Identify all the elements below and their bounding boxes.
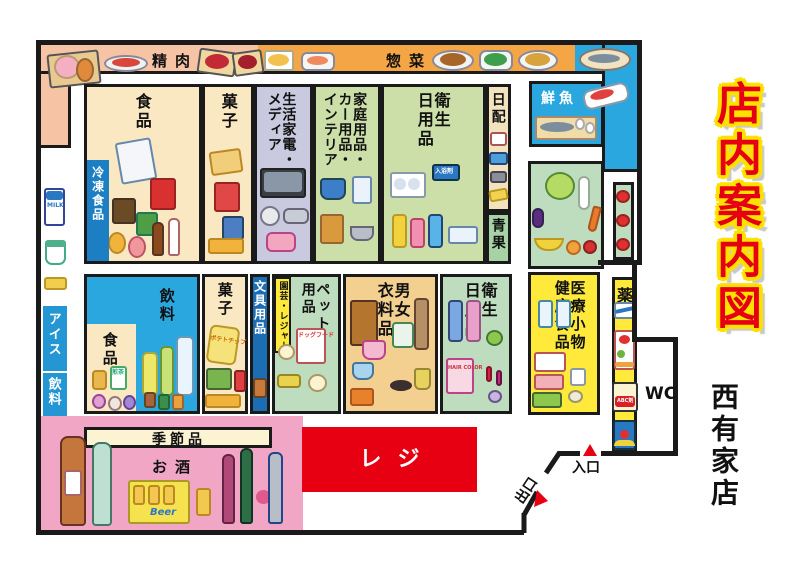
produce-label: 青果: [490, 218, 505, 252]
exit-triangle-icon: [534, 490, 548, 507]
detergent-bottle-icon: [428, 214, 443, 248]
deli-band-label: 惣菜: [386, 50, 432, 71]
milk-carton-band: [46, 191, 63, 200]
exit-label: 出口: [511, 474, 541, 507]
detergent-bottle-icon: [410, 218, 425, 248]
fish-label: 鮮魚: [541, 88, 577, 108]
can-drink-icon: [172, 394, 184, 410]
lipstick-icon: [486, 366, 492, 382]
appliance-icon: [266, 232, 296, 252]
wall-entry-left: [558, 451, 580, 456]
chicken-icon: [76, 58, 94, 82]
food-2-label: 食品: [101, 332, 117, 368]
beer-case-icon: Beer: [128, 480, 190, 524]
sausage-icon: [112, 58, 140, 67]
shoes-icon: [390, 380, 412, 391]
boots-icon: [414, 368, 431, 390]
pet-can-icon: [277, 374, 301, 388]
wine-bottle-icon: [222, 454, 235, 524]
powder-icon: [488, 390, 502, 403]
beer-can-icon: [163, 485, 175, 505]
natto-pack-icon: [490, 132, 507, 146]
fish-icon: [540, 122, 574, 132]
pot-icon: [350, 226, 374, 241]
calculator-icon: [253, 378, 267, 398]
cat-icon: [278, 344, 295, 360]
snack-box-icon: [208, 238, 244, 254]
snack-can-icon: [234, 370, 246, 392]
water-bottle-icon: [176, 336, 194, 396]
hygiene-1-label: 衛生日用品: [415, 92, 449, 149]
egg-icon: [575, 118, 585, 130]
sake-bottle-label: [64, 470, 82, 496]
tomato-icon: [616, 238, 630, 251]
register-label: レジ: [302, 427, 477, 492]
electronics-label: 生活家電・メディア: [266, 92, 295, 167]
wall-right-mid: [632, 263, 637, 342]
detergent-bottle-icon: [392, 214, 407, 248]
greens-icon: [484, 53, 507, 66]
boombox-icon: [283, 208, 309, 224]
yogurt-lid: [45, 240, 66, 247]
tofu-pack-icon: [489, 152, 508, 165]
tea-text: 煎茶: [112, 370, 124, 376]
wall-top: [36, 40, 642, 45]
kettle-icon: [260, 206, 280, 226]
sake-bottle-green-icon: [92, 442, 112, 526]
shampoo-bottle-icon: [466, 300, 481, 342]
can-drink-icon: [144, 392, 156, 408]
cabbage-icon: [545, 172, 575, 200]
tea-jar-icon: [92, 370, 107, 390]
cold-medicine-strip: [615, 362, 634, 367]
karaage-icon: [440, 53, 466, 66]
wc-label: WC: [645, 384, 676, 404]
store-floor-map: 精肉 惣菜 MILK アイス 飲料 食品 冷凍食品 菓子 生活家電: [0, 0, 800, 577]
entrance-label: 入口: [572, 460, 600, 476]
wall-right-upper: [637, 40, 642, 265]
alcohol-label: お酒: [152, 456, 198, 477]
bath-salt-text: 入浴剤: [435, 169, 453, 175]
daily-label: 日配: [490, 92, 505, 126]
bag-icon: [392, 322, 414, 348]
household-label: 家庭用品・カー用品・インテリア: [322, 92, 366, 167]
contact-box-icon: [538, 300, 553, 328]
sake-bottle-blue-icon: [268, 452, 283, 524]
stirfry-icon: [525, 53, 550, 66]
snacks-1-label: 菓子: [219, 93, 236, 131]
cold-medicine-dot: [619, 335, 630, 344]
konnyaku-icon: [490, 171, 507, 183]
stationery-label: 文具用品: [253, 280, 266, 336]
jam-jar-icon: [92, 394, 106, 409]
lipstick-icon: [496, 370, 502, 386]
can-drink-icon: [158, 394, 170, 410]
towel-icon: [352, 176, 372, 204]
pet-bottle-icon: [160, 346, 174, 396]
garden-label: 園芸・レジャー: [277, 281, 286, 351]
tissue-box-icon: [448, 226, 478, 244]
map-title: 店内案内図: [690, 80, 758, 355]
snack-box-icon: [208, 148, 243, 176]
beer-can-icon: [196, 488, 211, 516]
entrance-triangle-icon: [583, 444, 597, 456]
eggplant-icon: [532, 208, 544, 228]
apple-icon: [583, 240, 597, 254]
bandage-icon: [570, 368, 586, 386]
pet-bottle-icon: [142, 352, 158, 396]
beer-case-text: Beer: [150, 508, 176, 518]
sauce-bottle-icon: [168, 218, 180, 256]
wall-bottom: [36, 530, 524, 535]
can-icon: [108, 232, 126, 254]
beer-can-icon: [133, 485, 145, 505]
ice-label: アイス: [46, 312, 60, 357]
butter-box-icon: [44, 277, 67, 290]
can-icon: [128, 236, 146, 258]
supplement-box-icon: [534, 374, 564, 390]
store-name: 西有家店: [703, 382, 743, 517]
pants-icon: [414, 298, 429, 350]
wall-left: [36, 40, 41, 535]
jam-jar-icon: [123, 395, 136, 410]
paper-roll: [394, 178, 406, 190]
beef-icon: [205, 54, 229, 69]
stomach-sign-sun: [620, 430, 629, 439]
sushi-icon: [307, 56, 328, 65]
meat-band-label: 精肉: [152, 50, 198, 71]
wall-entry-right: [601, 451, 678, 456]
snacks-2-label: 菓子: [216, 282, 232, 318]
snack-box-icon: [214, 182, 240, 212]
pet-label: ペット用品: [300, 282, 329, 333]
daikon-icon: [578, 176, 590, 210]
hair-color-text: HAIR COLOR: [448, 366, 483, 371]
jam-jar-icon: [108, 396, 122, 411]
shirt-icon: [320, 178, 346, 200]
tempura-icon: [268, 54, 289, 66]
milk-text: MILK: [47, 203, 64, 209]
contact-box-icon: [556, 300, 571, 328]
blouse-icon: [362, 340, 386, 360]
wall-wc-top: [632, 337, 678, 342]
dog-icon: [308, 374, 327, 392]
cold-medicine-dot: [617, 350, 625, 358]
egg-icon: [585, 122, 595, 134]
drinks-2-label: 飲料: [158, 288, 174, 324]
orange-icon: [566, 240, 581, 255]
stomach-sign-wave: [614, 440, 635, 446]
food-1-label: 食品: [133, 93, 150, 131]
senbei-pack-icon: [206, 368, 232, 390]
seasonal-label: 季節品: [152, 429, 206, 449]
curry-box-icon: [112, 198, 136, 224]
tomato-icon: [616, 214, 630, 227]
sauce-bottle-icon: [152, 222, 164, 256]
snack-box-icon: [222, 216, 244, 240]
storage-box-icon: [320, 214, 344, 244]
dogfood-text: ドッグフード: [298, 333, 334, 339]
shampoo-bottle-icon: [448, 300, 463, 342]
wine-bottle-icon: [240, 448, 253, 524]
wall-drinks-label: 飲料: [46, 377, 60, 407]
frozen-label: 冷凍食品: [91, 166, 104, 222]
soap-icon: [486, 330, 503, 346]
meat-column-bottom-border: [41, 145, 71, 148]
supplement-box-icon: [534, 352, 566, 372]
snack-tray-icon: [205, 394, 241, 408]
tomato-icon: [616, 190, 630, 203]
wall-diagonal-lower: [524, 492, 537, 515]
hair-color-box-icon: [446, 358, 474, 394]
cream-jar-icon: [568, 390, 583, 403]
sliced-meat-icon: [238, 55, 257, 69]
fish-icon: [588, 54, 620, 63]
abc-sign-icon: ABC剤: [612, 382, 638, 412]
abc-sign-text: ABC剤: [617, 399, 633, 404]
basket-icon: [350, 388, 374, 406]
paper-roll: [408, 178, 420, 190]
shirt-icon: [352, 362, 374, 380]
health-food-box-icon: [532, 392, 562, 408]
beer-can-icon: [148, 485, 160, 505]
tv-screen: [264, 172, 302, 192]
red-pack-icon: [150, 178, 176, 210]
fish-column-bottom-border: [602, 169, 642, 172]
